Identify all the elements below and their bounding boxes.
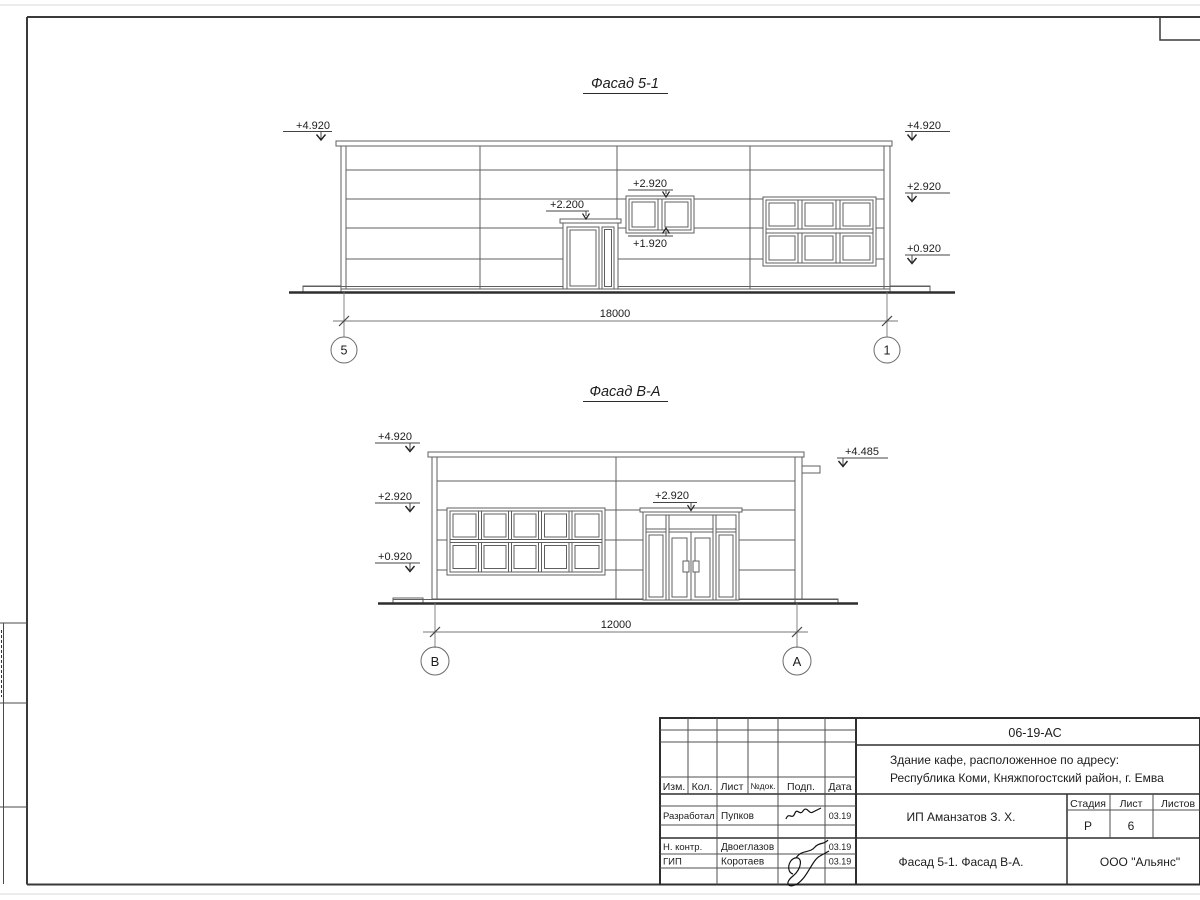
svg-text:+0.920: +0.920 xyxy=(378,551,412,563)
svg-text:+0.920: +0.920 xyxy=(907,243,941,255)
window-transom xyxy=(766,229,873,233)
corner-column-left xyxy=(432,457,437,599)
header-list: Лист xyxy=(721,781,744,793)
window-pane xyxy=(769,203,795,226)
entrance-transom xyxy=(646,529,736,532)
project-code: 06-19-АС xyxy=(1008,726,1061,740)
row-role: Н. контр. xyxy=(663,842,702,853)
signature-2 xyxy=(788,840,829,886)
window-large-f1 xyxy=(763,197,876,266)
window-pane xyxy=(514,514,536,537)
axis-label-1: 1 xyxy=(884,344,891,358)
svg-text:+4.485: +4.485 xyxy=(845,446,879,458)
axis-label-v: В xyxy=(431,654,440,669)
facade-5-1-title: Фасад 5-1 xyxy=(591,76,659,92)
axis-bubbles-f2: В А xyxy=(421,647,811,675)
window-pane xyxy=(545,546,567,569)
window-pane xyxy=(484,514,506,537)
svg-text:+1.920: +1.920 xyxy=(633,238,667,250)
stage-label: Стадия xyxy=(1070,798,1106,810)
facade-5-1: Фасад 5-1 xyxy=(283,76,955,363)
row-date: 03.19 xyxy=(829,842,852,852)
axis-label-a: А xyxy=(793,654,802,669)
window-ribbon-f2 xyxy=(447,508,605,575)
header-doc: №док. xyxy=(751,781,776,791)
door-side-panel-inner xyxy=(605,230,612,287)
project-address-line1: Здание кафе, расположенное по адресу: xyxy=(890,753,1119,767)
stage-value: Р xyxy=(1084,819,1092,833)
svg-text:+4.920: +4.920 xyxy=(296,120,330,132)
svg-text:+2.920: +2.920 xyxy=(655,490,689,502)
header-izm: Изм. xyxy=(663,781,686,793)
drawing-sheet: Фасад 5-1 xyxy=(0,0,1200,900)
window-mullion xyxy=(658,199,662,230)
entrance-divider xyxy=(666,515,669,600)
corner-column-right xyxy=(795,457,802,599)
title-block-headers: Изм. Кол. Лист №док. Подп. Дата xyxy=(663,781,852,793)
elevation-mark-left-low: +0.920 xyxy=(375,551,420,572)
door-f1 xyxy=(560,219,621,289)
facade-b-a-title: Фасад В-А xyxy=(589,384,660,400)
sheet-number: 6 xyxy=(1128,819,1135,833)
sidelight-pane xyxy=(649,535,663,597)
window-pane xyxy=(632,202,655,227)
window-pane xyxy=(575,546,599,569)
window-pane xyxy=(665,202,688,227)
corner-doc-box xyxy=(1160,17,1200,40)
company-name: ООО "Альянс" xyxy=(1100,855,1180,869)
elevation-mark-left-top: +4.920 xyxy=(375,431,420,452)
project-address-line2: Республика Коми, Княжпогостский район, г… xyxy=(890,771,1164,785)
window-small-f1 xyxy=(626,196,694,233)
leader-entrance-top: +2.920 xyxy=(653,490,697,511)
corner-column-right xyxy=(884,146,890,289)
window-pane xyxy=(805,203,833,226)
door-handle xyxy=(693,561,699,572)
leader-window-top: +2.920 xyxy=(628,178,673,197)
row-role: Разработал xyxy=(663,811,715,822)
sidelight-pane xyxy=(719,535,733,597)
drawing-title: Фасад 5-1. Фасад В-А. xyxy=(899,855,1024,869)
client-name: ИП Аманзатов З. Х. xyxy=(906,810,1015,824)
elevation-mark-right-low: +0.920 xyxy=(905,243,950,264)
window-pane xyxy=(545,514,567,537)
svg-text:+2.920: +2.920 xyxy=(907,181,941,193)
roof-vent xyxy=(802,466,820,473)
window-pane xyxy=(575,514,599,537)
drawing-page: Фасад 5-1 xyxy=(0,0,1200,900)
svg-text:+2.200: +2.200 xyxy=(550,199,584,211)
left-margin-boxes xyxy=(0,623,27,884)
row-name: Двоеглазов xyxy=(721,842,774,853)
axis-label-5: 5 xyxy=(341,344,348,358)
parapet-cap xyxy=(336,141,892,146)
window-transom xyxy=(450,540,602,543)
axis-bubbles-f1: 5 1 xyxy=(331,337,900,363)
dimension-label-f2: 12000 xyxy=(601,619,632,631)
row-name: Коротаев xyxy=(721,857,764,868)
row-role: ГИП xyxy=(663,857,682,868)
header-kol: Кол. xyxy=(692,781,713,793)
dimension-label-f1: 18000 xyxy=(600,308,631,320)
entrance-f2 xyxy=(640,508,742,600)
window-pane xyxy=(514,546,536,569)
door-leaf-inner xyxy=(570,230,596,286)
facade-b-a: Фасад В-А xyxy=(375,384,888,675)
row-date: 03.19 xyxy=(829,811,852,821)
leader-door-top: +2.200 xyxy=(546,199,590,219)
row-name: Пупков xyxy=(721,811,754,822)
elevation-mark-right-top: +4.920 xyxy=(905,120,950,140)
svg-text:+4.920: +4.920 xyxy=(907,120,941,132)
title-block-right: 06-19-АС Здание кафе, расположенное по а… xyxy=(890,726,1195,869)
elevation-mark-left-top: +4.920 xyxy=(283,120,332,140)
elevation-mark-right-top: +4.485 xyxy=(837,446,888,467)
title-block-rows: Разработал Пупков 03.19 Н. контр. Двоегл… xyxy=(663,808,851,886)
corner-column-left xyxy=(341,146,346,289)
svg-text:+2.920: +2.920 xyxy=(378,491,412,503)
window-pane xyxy=(843,203,870,226)
title-block: Изм. Кол. Лист №док. Подп. Дата Разработ… xyxy=(660,718,1200,886)
sheet-label: Лист xyxy=(1120,798,1143,810)
elevation-mark-right-mid: +2.920 xyxy=(905,181,950,202)
row-date: 03.19 xyxy=(829,857,852,867)
sheets-label: Листов xyxy=(1161,798,1196,810)
svg-text:+2.920: +2.920 xyxy=(633,178,667,190)
window-pane xyxy=(843,236,870,260)
header-data: Дата xyxy=(828,781,851,793)
window-pane xyxy=(769,236,795,260)
door-head-cap xyxy=(560,219,621,223)
elevation-mark-left-mid: +2.920 xyxy=(375,491,420,512)
window-pane xyxy=(453,514,476,537)
window-pane xyxy=(453,546,476,569)
entrance-divider xyxy=(713,515,716,600)
door-handle xyxy=(683,561,689,572)
parapet-cap xyxy=(428,452,804,457)
window-pane xyxy=(805,236,833,260)
header-podp: Подп. xyxy=(787,781,815,793)
window-pane xyxy=(484,546,506,569)
signature-1 xyxy=(786,808,821,819)
svg-text:+4.920: +4.920 xyxy=(378,431,412,443)
